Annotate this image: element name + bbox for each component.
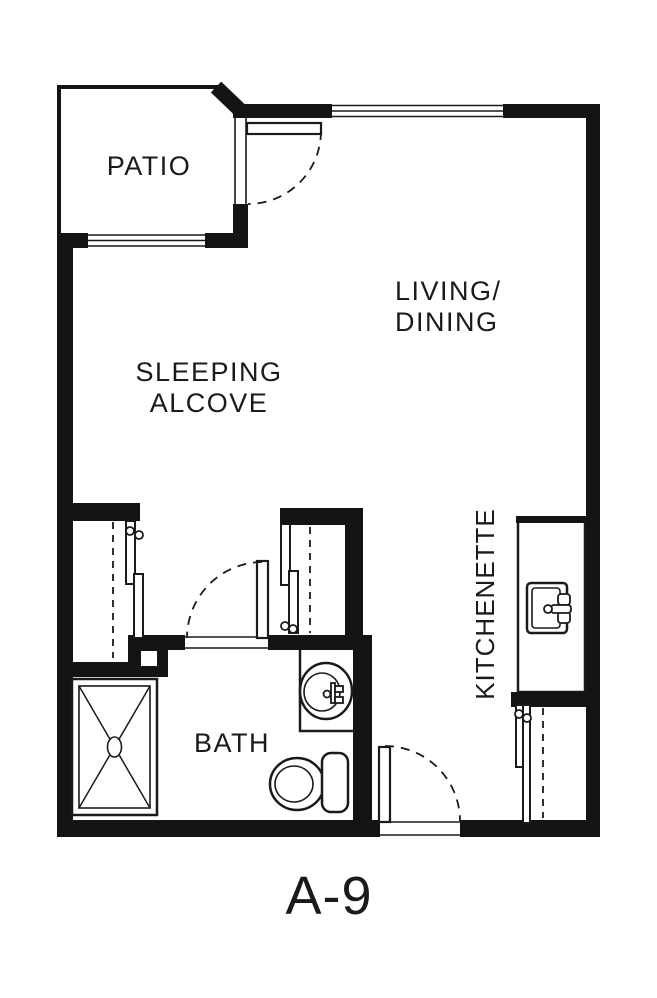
bathroom-vanity [300,650,353,731]
living-window [332,104,503,118]
right-wall [586,104,600,837]
floor-plan-drawing: PATIO [0,0,657,998]
bath-door-swing-arc [187,562,262,638]
chamfer-wall [216,87,241,111]
toilet-tank [322,753,348,812]
left-closet-north-wall [57,503,140,521]
entry-door-leaf [379,747,390,822]
faucet-handle [335,686,343,692]
shower [72,679,157,815]
patio-right-wall [233,204,248,248]
kitchenette-area: KITCHENETTE [470,508,600,707]
door-pull-icon [289,625,297,633]
center-closet-east-wall [345,508,363,650]
bath-north-wall-right [268,635,372,650]
entry-closet [515,705,543,823]
toilet-seat [275,766,313,802]
wall-notch [141,651,157,666]
bath-east-wall [353,650,372,822]
door-pull-icon [281,622,289,630]
sink-drain [324,691,331,698]
room-label-patio: PATIO [107,151,192,181]
faucet-spout [551,605,571,613]
bath-door-leaf [257,561,268,638]
bath-door [187,561,268,638]
left-wall [57,236,73,837]
room-label-living-line1: LIVING/ [395,276,502,306]
sliding-door-panel [289,571,298,633]
faucet-handle [558,594,570,605]
patio-door-leaf [247,123,321,134]
plan-title: A-9 [285,866,372,926]
counter-top-edge-wall [516,516,586,523]
door-pull-icon [135,531,143,539]
room-label-kitchenette: KITCHENETTE [470,508,500,700]
toilet [270,753,348,812]
faucet-handle [335,697,343,703]
room-labels: LIVING/ DINING SLEEPING ALCOVE [135,276,501,418]
sink-drain [544,605,552,613]
patio-door-swing-arc [248,131,321,204]
entry-door-swing-arc [385,746,460,821]
door-pull-icon [126,527,134,535]
door-pull-icon [515,710,523,718]
kitchen-sink [527,583,571,633]
entry-door [379,746,460,837]
floor-plan-page: PATIO [0,0,657,998]
shower-drain [108,737,122,757]
room-label-bath: BATH [194,728,270,758]
center-closet [281,524,310,633]
room-label-sleeping-line1: SLEEPING [135,357,282,387]
room-label-sleeping-line2: ALCOVE [150,388,269,418]
door-pull-icon [523,714,531,722]
bottom-wall [57,820,600,837]
room-label-living-line2: DINING [395,307,499,337]
sliding-door-panel [134,574,143,638]
